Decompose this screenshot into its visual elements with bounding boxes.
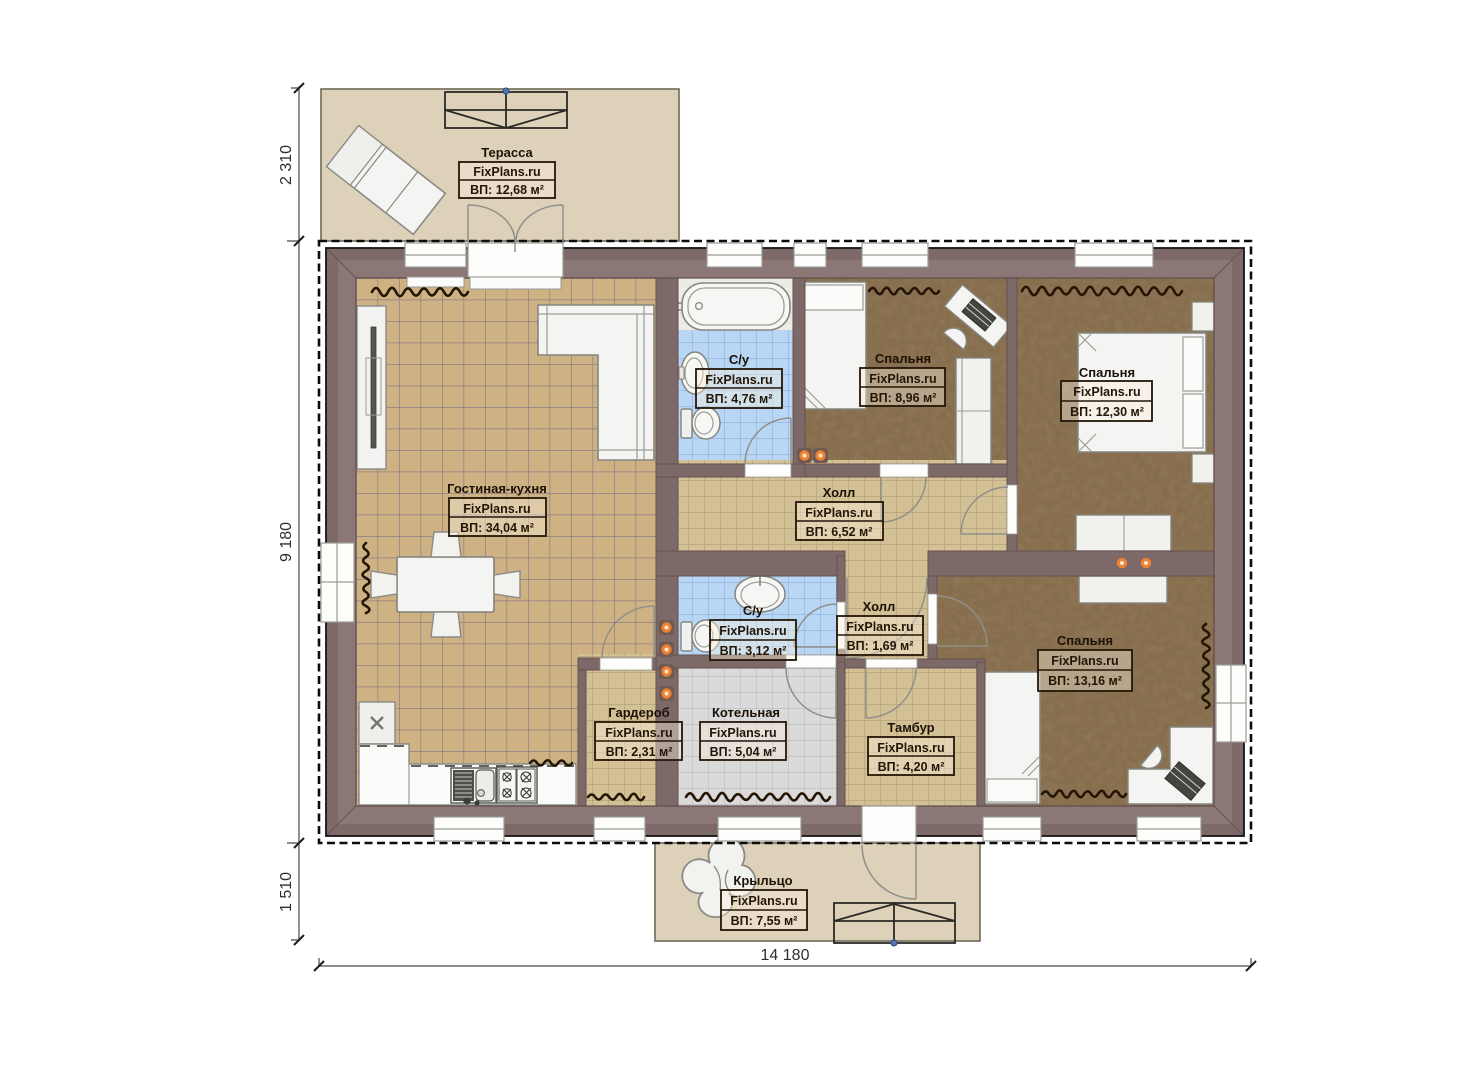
svg-text:2 310: 2 310 (278, 145, 295, 185)
svg-text:Спальня: Спальня (1057, 633, 1113, 648)
svg-text:FixPlans.ru: FixPlans.ru (1073, 385, 1140, 399)
svg-text:ВП: 34,04 м²: ВП: 34,04 м² (460, 521, 534, 535)
svg-text:FixPlans.ru: FixPlans.ru (709, 726, 776, 740)
svg-text:9 180: 9 180 (278, 522, 295, 562)
svg-text:FixPlans.ru: FixPlans.ru (605, 726, 672, 740)
svg-text:ВП: 6,52 м²: ВП: 6,52 м² (806, 525, 873, 539)
svg-text:Спальня: Спальня (1079, 365, 1135, 380)
svg-text:Спальня: Спальня (875, 351, 931, 366)
svg-text:Гостиная-кухня: Гостиная-кухня (447, 481, 547, 496)
svg-text:ВП: 4,76 м²: ВП: 4,76 м² (706, 392, 773, 406)
svg-text:Терасса: Терасса (481, 145, 533, 160)
svg-text:Холл: Холл (823, 485, 856, 500)
svg-text:С/у: С/у (743, 603, 764, 618)
svg-text:С/у: С/у (729, 352, 750, 367)
svg-text:FixPlans.ru: FixPlans.ru (1051, 654, 1118, 668)
svg-text:ВП: 1,69 м²: ВП: 1,69 м² (847, 639, 914, 653)
svg-text:Котельная: Котельная (712, 705, 780, 720)
svg-text:FixPlans.ru: FixPlans.ru (805, 506, 872, 520)
svg-text:FixPlans.ru: FixPlans.ru (473, 165, 540, 179)
svg-text:FixPlans.ru: FixPlans.ru (869, 372, 936, 386)
svg-text:ВП: 7,55 м²: ВП: 7,55 м² (731, 914, 798, 928)
svg-text:FixPlans.ru: FixPlans.ru (846, 620, 913, 634)
svg-text:ВП: 12,30 м²: ВП: 12,30 м² (1070, 405, 1144, 419)
svg-text:Тамбур: Тамбур (887, 720, 934, 735)
svg-text:ВП: 8,96 м²: ВП: 8,96 м² (870, 391, 937, 405)
svg-text:ВП: 5,04 м²: ВП: 5,04 м² (710, 745, 777, 759)
svg-text:ВП: 4,20 м²: ВП: 4,20 м² (878, 760, 945, 774)
svg-text:Крыльцо: Крыльцо (733, 873, 792, 888)
svg-text:FixPlans.ru: FixPlans.ru (705, 373, 772, 387)
svg-text:ВП: 3,12 м²: ВП: 3,12 м² (720, 644, 787, 658)
svg-text:14 180: 14 180 (761, 947, 810, 964)
svg-text:Гардероб: Гардероб (608, 705, 669, 720)
svg-text:FixPlans.ru: FixPlans.ru (719, 624, 786, 638)
svg-text:1 510: 1 510 (278, 872, 295, 912)
svg-text:ВП: 2,31 м²: ВП: 2,31 м² (606, 745, 673, 759)
svg-text:FixPlans.ru: FixPlans.ru (463, 502, 530, 516)
svg-text:ВП: 13,16 м²: ВП: 13,16 м² (1048, 674, 1122, 688)
svg-text:FixPlans.ru: FixPlans.ru (877, 741, 944, 755)
svg-text:ВП: 12,68 м²: ВП: 12,68 м² (470, 183, 544, 197)
svg-text:Холл: Холл (863, 599, 896, 614)
svg-text:FixPlans.ru: FixPlans.ru (730, 894, 797, 908)
